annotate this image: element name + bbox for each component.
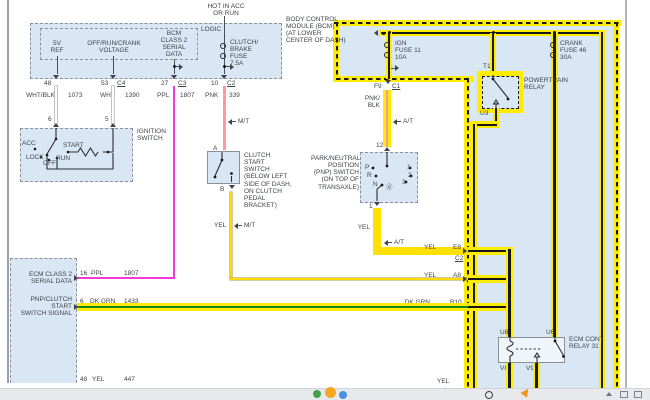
bcm-offruncrank: OFF/RUN/CRANK VOLTAGE: [86, 40, 142, 54]
wht-wire[interactable]: [112, 86, 115, 124]
pin-6-ecm: 6: [80, 298, 84, 305]
pin-chevron: [229, 185, 235, 189]
b10-jumper-wire[interactable]: [468, 306, 510, 308]
pin-chevron: [463, 276, 467, 282]
relay-coil-feed-wire[interactable]: [508, 249, 510, 337]
direction-arrow: [395, 65, 399, 71]
hot-feed-wire[interactable]: [224, 16, 225, 23]
mt-tag: M/T: [244, 222, 255, 229]
ecm-relay-art: [498, 337, 565, 363]
ckt-1390: 1390: [125, 92, 139, 99]
arrow-tail: [388, 242, 392, 243]
junction-dot: [382, 32, 385, 35]
pin-chevron: [110, 123, 116, 127]
powertrain-relay-label: POWERTRAIN RELAY: [524, 77, 570, 91]
conn-c3: C3: [178, 80, 186, 87]
mt-arrow: [228, 119, 232, 125]
pnp-2: 2: [408, 172, 412, 179]
ppl-wire[interactable]: [173, 86, 176, 279]
at-arrow: [393, 119, 397, 125]
pin-6: 6: [48, 116, 52, 123]
window-left-border: [7, 0, 9, 388]
pin-chevron: [221, 75, 227, 79]
pin-t1: T1: [483, 63, 491, 70]
whtblk-wire[interactable]: [55, 86, 58, 124]
bcm-lead: [113, 56, 114, 74]
pnp-3: 3: [402, 179, 406, 186]
tray-expand-icon[interactable]: [606, 392, 612, 396]
pin-chevron: [171, 75, 177, 79]
ign-lock: LOCK: [26, 154, 44, 161]
pin-u3: U3: [480, 110, 488, 117]
fuse-block-border: [467, 78, 469, 388]
wire-yel: YEL: [214, 222, 226, 229]
pnk-wire[interactable]: [223, 86, 226, 150]
wire-dkgrn: DK GRN: [90, 298, 115, 305]
bus-feed-arrow: [374, 30, 378, 36]
pnp-p: P: [365, 164, 369, 171]
bcm-lead: [57, 56, 58, 74]
clutch-switch-art: [207, 151, 240, 184]
crank-fuse-label: CRANK FUSE 46 30A: [560, 40, 590, 61]
logic-label: LOGIC: [201, 26, 221, 33]
ckt-1433: 1433: [124, 298, 138, 305]
pin-chevron: [74, 275, 78, 281]
wiring-diagram-viewer: IGN FUSE 11 10A CRANK FUSE 46 30A POWERT…: [0, 0, 650, 400]
fuse-hook: [550, 52, 556, 58]
tray-icon-1[interactable]: [620, 391, 628, 398]
wire-ppl: PPL: [157, 92, 169, 99]
arrow-tail: [397, 121, 401, 122]
pin-chevron: [53, 75, 59, 79]
pnp-1: 1: [407, 164, 411, 171]
fuse-block-border: [336, 78, 470, 80]
bcm-name: BODY CONTROL MODULE (BCM) (AT LOWER CENT…: [286, 16, 356, 45]
ckt-339: 339: [229, 92, 240, 99]
pin-16: 16: [80, 270, 87, 277]
fuse-block-border: [334, 22, 621, 24]
pnp-switch-label: PARK/NEUTRAL POSITION (PNP) SWITCH (ON T…: [311, 155, 359, 191]
yel-mt-wire[interactable]: [230, 192, 233, 278]
clutch-switch-label: CLUTCH START SWITCH (BELOW LEFT SIDE OF …: [244, 152, 298, 209]
wire-pnk: PNK: [205, 92, 218, 99]
pin-chevron: [53, 123, 59, 127]
relay-v8-wire[interactable]: [508, 363, 510, 388]
mt-tag: M/T: [238, 118, 249, 125]
pnp-d: ⓓ: [386, 184, 393, 191]
wire-yel: YEL: [353, 224, 370, 231]
e8-jumper-wire[interactable]: [468, 250, 510, 252]
powertrain-relay-art: [481, 75, 519, 109]
sun-icon[interactable]: [325, 387, 336, 398]
wire-ppl: PPL: [91, 270, 103, 277]
blue-app-icon[interactable]: [339, 391, 347, 399]
pin-u8: U8: [500, 329, 508, 336]
pin-5: 5: [105, 116, 109, 123]
pin-48: 48: [44, 80, 51, 87]
at-tag: A/T: [403, 118, 413, 125]
fuse-hook: [550, 42, 556, 48]
fuse-block-border: [616, 22, 618, 388]
search-icon[interactable]: [485, 391, 493, 399]
relay-v9-wire[interactable]: [535, 363, 537, 388]
ign-run: RUN: [56, 155, 70, 162]
pin-f9: F9: [374, 83, 382, 90]
ecm-sig-class2: ECM CLASS 2 SERIAL DATA: [12, 271, 72, 285]
direction-arrow: [179, 64, 183, 70]
pin-chevron: [110, 75, 116, 79]
pnkblk-wire[interactable]: [386, 90, 389, 147]
crank-output-wire[interactable]: [601, 32, 603, 388]
wire-yel: YEL: [424, 272, 436, 279]
green-app-icon[interactable]: [313, 390, 321, 398]
pin-chevron: [384, 147, 390, 151]
crank-voltage-wire[interactable]: [473, 124, 475, 388]
pnp-r: R: [367, 172, 372, 179]
ign-acc: ACC: [22, 140, 36, 147]
power-source-label: HOT IN ACC OR RUN: [197, 3, 255, 17]
pin-27: 27: [161, 80, 168, 87]
ecm-relay-label: ECM CONT RELAY 31: [569, 336, 611, 350]
fuse-hook: [384, 42, 390, 48]
ign-start: START: [63, 142, 84, 149]
conn-c1: C1: [392, 83, 400, 90]
pnp-n: N: [373, 181, 378, 188]
relay-t1-wire[interactable]: [492, 33, 494, 75]
a8-jumper-wire[interactable]: [468, 278, 510, 280]
ign-fuse-label: IGN FUSE 11 10A: [395, 40, 423, 61]
ckt-1073: 1073: [68, 92, 82, 99]
bcm-class2: BCM CLASS 2 SERIAL DATA: [157, 30, 191, 59]
pin-53: 53: [101, 80, 108, 87]
pin-chevron: [74, 304, 78, 310]
fuse-hook: [384, 52, 390, 58]
arrow-tail: [238, 225, 242, 226]
pin-b: B: [220, 186, 224, 193]
pin-chevron: [463, 248, 467, 254]
pin-chevron: [385, 80, 391, 84]
tray-icon-2[interactable]: [634, 391, 642, 398]
conn-c4: C4: [117, 80, 125, 87]
clutch-brake-fuse-label: CLUTCH/ BRAKE FUSE 7.5A: [230, 39, 258, 68]
ckt-1807: 1807: [124, 270, 138, 277]
pin-a8: A8: [453, 272, 461, 279]
dkgrn-wire[interactable]: [77, 306, 468, 309]
fuse-hook: [220, 53, 226, 59]
bcm-5v-ref: 5V REF: [40, 40, 74, 54]
pin-chevron: [374, 202, 380, 206]
direction-arrow: [230, 64, 234, 70]
wire-whtblk: WHT/BLK: [26, 92, 55, 99]
window-right-border: [625, 0, 627, 388]
at-arrow: [384, 240, 388, 246]
pin-12: 12: [376, 142, 383, 149]
wire-pnkblk: PNK/ BLK: [360, 95, 380, 109]
wire-yel: YEL: [424, 244, 436, 251]
ignition-switch-label: IGNITION SWITCH: [137, 128, 166, 142]
ecm-sig-pnp: PNP/CLUTCH START SWITCH SIGNAL: [12, 296, 72, 317]
fuse-hook: [220, 43, 226, 49]
arrow-tail: [232, 121, 236, 122]
at-tag: A/T: [394, 239, 404, 246]
ckt-1807: 1807: [180, 92, 194, 99]
pin-10: 10: [211, 80, 218, 87]
conn-c2: C2: [227, 80, 235, 87]
ign-off: OFF: [43, 160, 56, 167]
conn-c2-fb: C2: [455, 255, 463, 262]
mt-arrow: [234, 223, 238, 229]
pin-u6: U6: [546, 329, 554, 336]
pin-e8: E8: [453, 244, 461, 251]
